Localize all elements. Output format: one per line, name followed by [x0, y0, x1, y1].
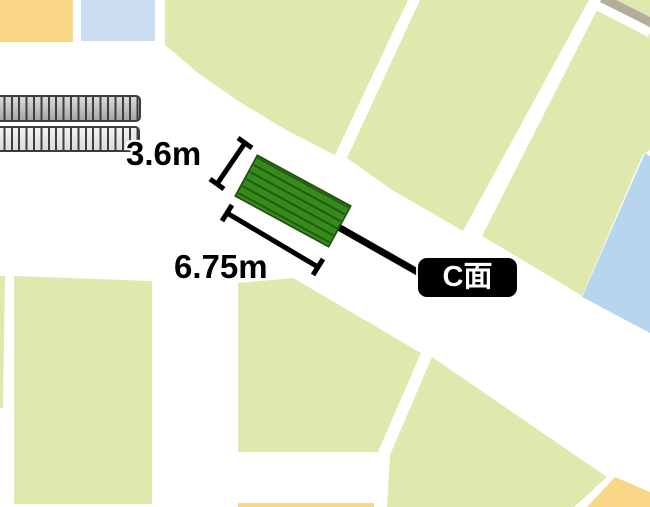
parcel-orange-topleft [0, 0, 73, 42]
parcel-green-left-sliver [0, 276, 5, 408]
parcel-green-middle [238, 278, 421, 452]
parcel-orange-bottom-strip [238, 503, 374, 507]
face-badge: C面 [418, 258, 517, 297]
face-badge-label: C面 [443, 263, 493, 292]
leader-line [333, 224, 428, 278]
width-dimension-label: 3.6m [126, 137, 201, 170]
steps-symbol-upper [0, 95, 141, 122]
map-canvas: 3.6m 6.75m C面 [0, 0, 650, 507]
parcel-layer [0, 0, 650, 507]
width-dimension-line [217, 143, 245, 184]
map-background [0, 0, 650, 507]
parcel-green-bottomleft [14, 276, 152, 504]
parcel-blue-topleft [81, 0, 155, 41]
steps-symbol-lower [0, 126, 140, 152]
length-dimension-label: 6.75m [174, 250, 268, 283]
parcel-green-bottomright [387, 357, 607, 507]
